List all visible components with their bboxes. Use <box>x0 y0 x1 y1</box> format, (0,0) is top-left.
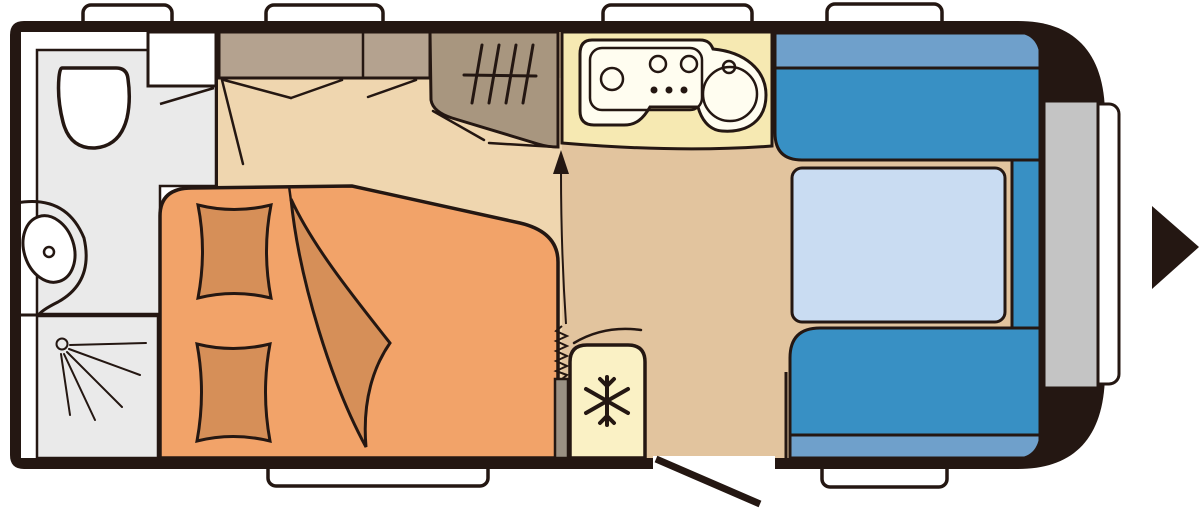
knob-icon <box>681 87 688 94</box>
dinette-backrest <box>775 33 1040 68</box>
floorplan-svg <box>0 0 1200 516</box>
dinette-backrest <box>790 435 1040 458</box>
pillow-icon <box>198 205 271 298</box>
bathroom-cabinet <box>148 32 216 86</box>
knob-icon <box>651 87 658 94</box>
dinette-side-seat <box>1012 160 1040 328</box>
pillow-icon <box>197 344 270 441</box>
shower-tray <box>37 316 158 458</box>
dinette-table <box>792 168 1005 322</box>
toilet-icon <box>59 68 130 148</box>
dinette-seat <box>790 328 1040 435</box>
dinette <box>775 33 1040 458</box>
locker-lid <box>1044 101 1098 388</box>
knob-icon <box>666 87 673 94</box>
kitchen <box>562 32 772 149</box>
overhead-cabinet <box>219 32 430 78</box>
entrance-door <box>653 456 775 504</box>
double-bed <box>160 186 558 458</box>
partition-wall <box>555 379 568 458</box>
dinette-seat <box>775 68 1040 160</box>
caravan-floorplan <box>0 0 1200 516</box>
front-locker <box>1044 101 1119 388</box>
direction-of-travel-arrow-icon <box>1152 206 1199 289</box>
